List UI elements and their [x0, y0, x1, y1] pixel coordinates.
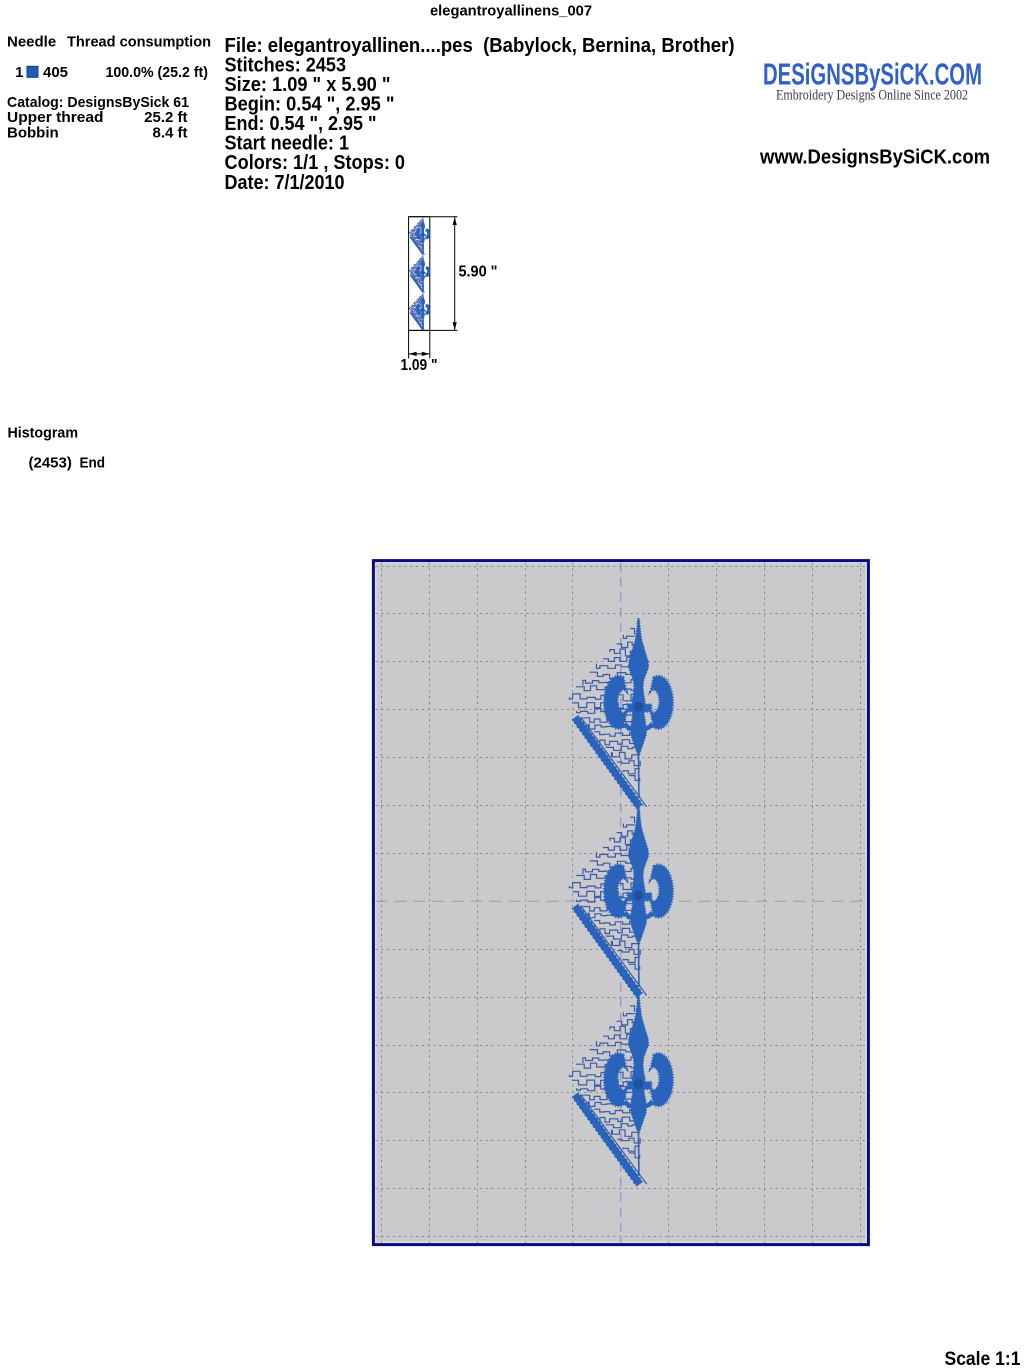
svg-text:DESiGNSBySiCK.COM: DESiGNSBySiCK.COM	[763, 57, 982, 92]
svg-text:5.90 ": 5.90 "	[459, 263, 498, 280]
svg-text:Needle: Needle	[7, 34, 56, 51]
svg-text:Histogram: Histogram	[8, 425, 79, 442]
svg-text:100.0% (25.2 ft): 100.0% (25.2 ft)	[106, 64, 209, 81]
svg-text:(2453): (2453)	[29, 455, 72, 472]
svg-text:www.DesignsBySiCK.com: www.DesignsBySiCK.com	[759, 147, 990, 169]
svg-text:Scale 1:1: Scale 1:1	[945, 1349, 1021, 1370]
svg-text:405: 405	[43, 64, 68, 81]
svg-text:Bobbin: Bobbin	[7, 125, 59, 142]
svg-text:elegantroyallinens_007: elegantroyallinens_007	[430, 4, 592, 20]
svg-text:8.4 ft: 8.4 ft	[152, 125, 187, 142]
svg-text:1.09 ": 1.09 "	[401, 357, 438, 374]
svg-text:1: 1	[15, 64, 23, 81]
svg-text:End: End	[80, 455, 106, 472]
svg-text:Thread consumption: Thread consumption	[67, 34, 211, 51]
svg-text:Date: 7/1/2010: Date: 7/1/2010	[225, 172, 345, 194]
svg-text:Embroidery Designs Online Sinc: Embroidery Designs Online Since 2002	[776, 88, 968, 104]
